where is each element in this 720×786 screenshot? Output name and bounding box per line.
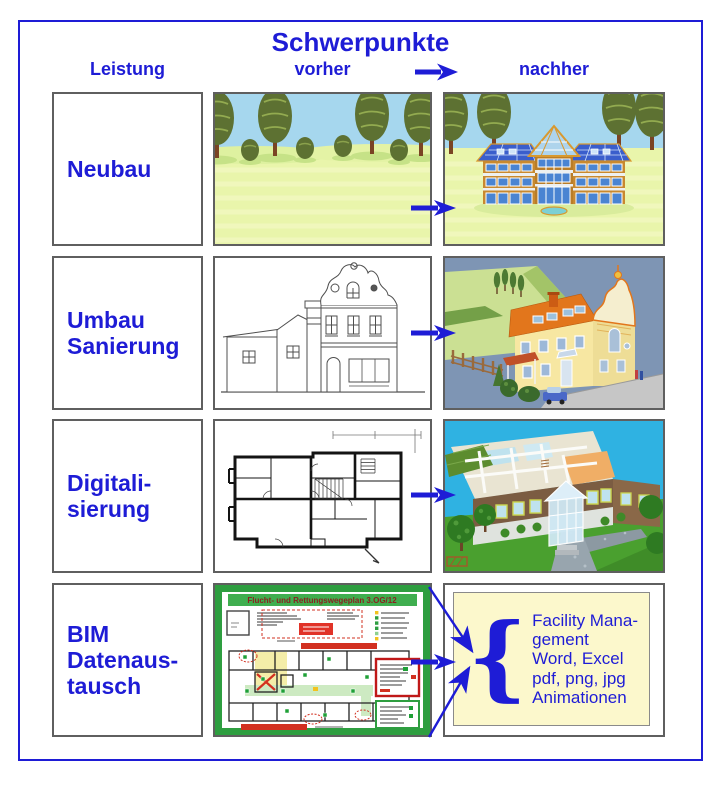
row-umbau-vorher-image (213, 256, 432, 410)
floor-plan-drawing (215, 421, 430, 571)
digital-model-scene (445, 421, 663, 571)
row-digitalisierung-nachher-image (443, 419, 665, 573)
column-header-vorher: vorher (213, 59, 432, 80)
infographic-page: { "header": { "title": "Schwerpunkte", "… (0, 0, 720, 786)
old-house-drawing (215, 258, 430, 408)
row-digitalisierung-label-box: Digitali- sierung (52, 419, 203, 573)
row-bim-vorher-image: Flucht- und Rettungswegeplan 3.OG/12 (213, 583, 432, 737)
row-bim-label: BIM Datenaus- tausch (54, 621, 178, 699)
row-neubau-vorher-image (213, 92, 432, 246)
export-formats-panel: { Facility Mana- gement Word, Excel pdf,… (453, 592, 650, 726)
escape-plan-scene: Flucht- und Rettungswegeplan 3.OG/12 (215, 585, 430, 735)
escape-plan-title: Flucht- und Rettungswegeplan 3.OG/12 (247, 596, 397, 605)
row-neubau-label: Neubau (54, 156, 151, 182)
curly-brace: { (468, 613, 527, 701)
new-house-scene (445, 94, 663, 244)
row-bim-label-box: BIM Datenaus- tausch (52, 583, 203, 737)
row-digitalisierung-vorher-image (213, 419, 432, 573)
legend-red-box (376, 659, 419, 696)
row-neubau-label-box: Neubau (52, 92, 203, 246)
meadow-scene (215, 94, 430, 244)
legend-green-box (376, 701, 419, 728)
row-neubau-nachher-image (443, 92, 665, 246)
row-digitalisierung-label: Digitali- sierung (54, 470, 151, 522)
row-umbau-nachher-image (443, 256, 665, 410)
row-umbau-label-box: Umbau Sanierung (52, 256, 203, 410)
page-title: Schwerpunkte (18, 27, 703, 58)
renovated-house-scene (445, 258, 663, 408)
row-umbau-label: Umbau Sanierung (54, 307, 179, 359)
column-header-nachher: nachher (443, 59, 665, 80)
export-formats-list: Facility Mana- gement Word, Excel pdf, p… (532, 611, 638, 707)
row-bim-nachher-image: { Facility Mana- gement Word, Excel pdf,… (443, 583, 665, 737)
column-header-leistung: Leistung (52, 59, 203, 80)
